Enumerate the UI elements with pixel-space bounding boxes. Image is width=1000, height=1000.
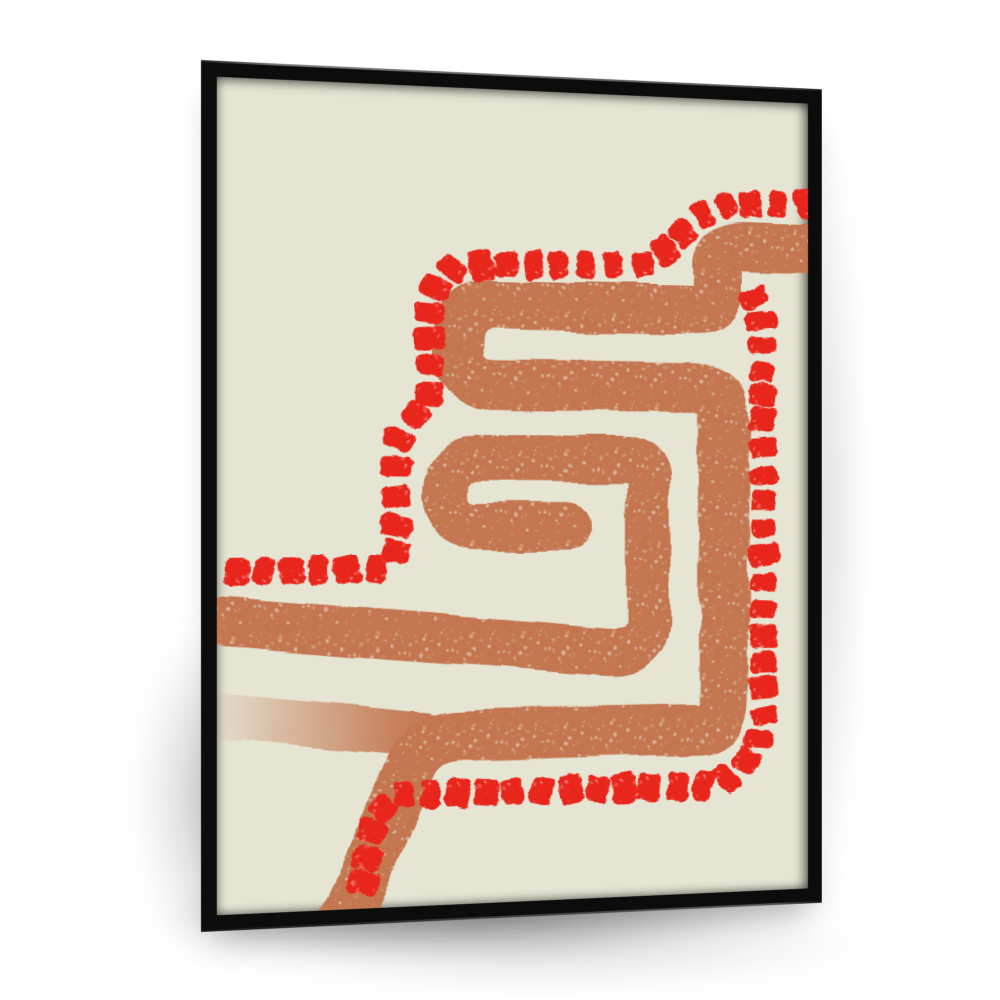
red-stamp-dot <box>745 310 778 332</box>
red-stamp-dot <box>380 424 418 454</box>
red-stamp-dot <box>748 406 777 434</box>
red-stamp-dot <box>224 558 250 586</box>
red-stamp-dot <box>557 773 586 807</box>
red-stamp-dot <box>380 456 413 477</box>
red-stamp-dot <box>750 573 777 593</box>
red-stamp-dot <box>690 769 716 803</box>
red-stamp-dot <box>576 250 595 280</box>
red-stamp-dot <box>415 352 445 377</box>
red-stamp-dot <box>751 600 777 619</box>
red-stamp-dot <box>747 336 776 354</box>
red-stamp-dot <box>748 436 777 458</box>
red-stamp-dot <box>743 729 774 748</box>
red-stamp-dot <box>584 774 610 804</box>
red-stamp-dot <box>747 382 777 409</box>
red-stamp-dot <box>499 776 526 806</box>
frame-cast-shadow-right <box>818 110 864 910</box>
red-stamp-dot <box>792 187 808 220</box>
red-stamp-dot <box>413 326 446 350</box>
red-stamp-dot <box>751 489 776 511</box>
red-stamp-dot <box>276 556 307 586</box>
red-stamp-dot <box>610 771 639 806</box>
red-stamp-dot <box>631 251 654 278</box>
red-stamp-dot <box>738 190 764 219</box>
red-stamp-dot <box>415 382 444 407</box>
red-stamp-dot <box>381 483 411 509</box>
black-floater-frame <box>201 60 822 932</box>
red-stamp-dot <box>602 250 625 280</box>
red-stamp-dot <box>443 776 473 809</box>
wall <box>0 0 1000 1000</box>
red-stamp-dot <box>378 512 414 539</box>
red-stamp-dot <box>749 704 778 727</box>
red-stamp-dot <box>528 776 555 806</box>
red-stamp-dot <box>730 744 764 778</box>
red-stamp-dot <box>308 555 328 585</box>
red-stamp-dot <box>332 553 363 586</box>
red-stamp-dot <box>688 198 717 231</box>
red-stamp-dot <box>420 780 440 808</box>
red-stamp-dot <box>749 676 779 701</box>
red-stamp-dot <box>751 651 777 674</box>
red-stamp-dot <box>548 250 570 279</box>
red-stamp-dot <box>636 773 661 801</box>
red-stamp-dot <box>494 252 519 278</box>
art-canvas <box>217 77 808 916</box>
red-stamp-dot <box>523 249 544 280</box>
abstract-artwork-svg <box>217 77 808 916</box>
red-stamp-dot <box>473 778 500 806</box>
red-stamp-dot <box>748 359 776 383</box>
red-stamp-dot <box>748 465 779 487</box>
red-stamp-dot <box>666 772 690 802</box>
red-stamp-dot <box>747 542 780 568</box>
red-stamp-dot <box>749 622 779 650</box>
red-stamp-dot <box>413 301 445 325</box>
red-stamp-dot <box>712 190 741 221</box>
red-stamp-dot <box>251 556 277 587</box>
red-stamp-dot <box>768 189 788 219</box>
red-stamp-dot <box>465 247 496 283</box>
red-stamp-dot <box>392 780 416 809</box>
red-stamp-dot <box>752 518 777 538</box>
